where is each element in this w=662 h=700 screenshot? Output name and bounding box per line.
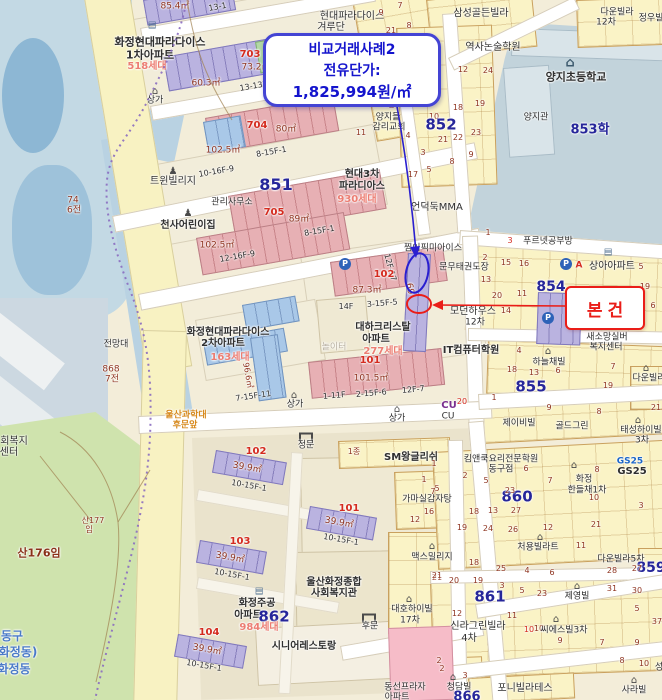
- map-label: 3: [499, 582, 504, 590]
- map-label: 11: [576, 542, 586, 550]
- map-label: CU: [441, 401, 456, 411]
- map-label: 13: [481, 276, 491, 284]
- map-label: 화정동: [0, 663, 31, 675]
- map-label: 전망대: [104, 341, 129, 350]
- map-label: 6: [549, 569, 554, 577]
- map-label: 6: [650, 302, 655, 310]
- map-label: 20: [457, 398, 467, 406]
- map-label: 21: [591, 521, 601, 529]
- map-label: 69: [403, 283, 414, 296]
- map-label: 천사어린이집: [160, 221, 215, 231]
- map-label: 2: [439, 665, 444, 673]
- map-label: 감리교회: [372, 124, 405, 133]
- map-label: 854: [536, 280, 565, 294]
- map-label: 6전: [67, 207, 81, 216]
- map-label: 12: [410, 516, 420, 524]
- map-label: 양지초등학교: [546, 72, 607, 83]
- map-label: 11: [507, 612, 517, 620]
- map-label: 가마실감자탕: [402, 496, 452, 505]
- map-label: 제영빌: [565, 593, 590, 602]
- school-icon: ⌂: [565, 57, 574, 70]
- map-label: 2: [462, 472, 467, 480]
- map-label: 화정: [576, 476, 593, 485]
- map-label: 대호하이빌: [391, 606, 432, 615]
- map-label: 85.4㎡: [160, 3, 189, 12]
- map-label: 101: [360, 356, 381, 366]
- house-icon: ⌂: [574, 582, 580, 592]
- map-label: 13: [529, 369, 539, 377]
- map-label: 74: [67, 197, 78, 206]
- map-label: 2차아파트: [201, 339, 245, 349]
- map-label: 화정동): [0, 646, 37, 658]
- map-label: 102.5㎡: [200, 242, 235, 251]
- map-label: 1-11F: [323, 391, 346, 401]
- house-icon: ⌂: [643, 364, 649, 374]
- map-label: 12차: [596, 19, 616, 28]
- map-label: 5: [638, 263, 643, 271]
- map-label: 화정현대파라다이스: [114, 37, 205, 48]
- map-label: 855: [515, 380, 546, 395]
- map-label: 26: [508, 526, 518, 534]
- map-label: 새소망실버: [586, 334, 627, 343]
- map-label: 5: [426, 166, 431, 174]
- map-label: 866: [453, 691, 480, 700]
- map-label: 1종: [348, 448, 360, 456]
- map-label: 모던하우스: [450, 307, 496, 317]
- map-label: 골드그린: [555, 423, 588, 432]
- map-label: 21: [432, 572, 442, 580]
- map-label: 처용빌라트: [517, 544, 558, 553]
- person-icon: ♟: [184, 209, 193, 219]
- map-label: 상가: [389, 415, 406, 424]
- map-label: 시니어레스토랑: [272, 642, 336, 652]
- map-label: 복지센터: [589, 344, 622, 353]
- house-icon: ⌂: [406, 595, 412, 605]
- map-label: 1: [431, 460, 436, 468]
- map-label: 10: [589, 494, 599, 502]
- map-label: 703: [240, 50, 261, 60]
- map-label: 20: [449, 577, 459, 585]
- map-label: 16: [424, 508, 434, 516]
- map-label: 후문: [362, 623, 379, 632]
- house-icon: ⌂: [450, 673, 456, 683]
- map-label: 13: [488, 507, 498, 515]
- park-icon: P: [560, 258, 572, 270]
- house-icon: ⌂: [429, 542, 435, 552]
- park-icon: P: [339, 258, 351, 270]
- map-label: CU: [442, 413, 455, 422]
- map-label: 20: [492, 292, 502, 300]
- map-label: 27: [511, 507, 521, 515]
- map-label: 7: [599, 639, 604, 647]
- map-label: 21: [438, 136, 448, 144]
- map-label: 하늘채빌: [532, 359, 565, 368]
- map-label: SM왕글리쉬: [384, 453, 438, 463]
- map-label: 성: [655, 664, 662, 673]
- map-label: 12: [543, 524, 553, 532]
- map-label: 984세대: [239, 623, 278, 633]
- map-label: 현대3차: [345, 170, 380, 180]
- map-label: 한들채1차: [568, 487, 607, 496]
- map-label: 사회복지관: [311, 589, 357, 599]
- map-label: 19: [473, 577, 483, 585]
- map-label: 28: [607, 567, 617, 575]
- map-label: 8: [619, 657, 624, 665]
- map-label: 17: [408, 171, 418, 179]
- map-label: A: [576, 262, 583, 271]
- map-label: 868: [102, 366, 119, 375]
- callout-case-title: 비교거래사례2: [308, 39, 395, 59]
- bldg-icon: ▤: [148, 22, 157, 31]
- map-label: IT컴퓨터학원: [443, 346, 500, 356]
- map-label: 울산과학대: [165, 412, 206, 421]
- map-label: 씨에스빌3차: [540, 627, 587, 636]
- map-label: 2: [436, 657, 441, 665]
- map-label: 회복지: [0, 437, 28, 447]
- map-label: 24: [483, 67, 493, 75]
- map-label: 5: [483, 477, 488, 485]
- map-label: 트윈빌리지: [150, 177, 196, 187]
- map-label: GS25: [617, 467, 646, 477]
- map-label: 4: [405, 132, 410, 140]
- map-label: 27: [632, 565, 642, 573]
- map-label: 9: [378, 9, 383, 17]
- house-icon: ⌂: [553, 615, 559, 625]
- house-icon: ⌂: [537, 533, 543, 543]
- map-label: 1: [491, 394, 496, 402]
- map-label: 19: [475, 100, 485, 108]
- house-icon: ⌂: [631, 676, 637, 686]
- map-label: 울산화정종합: [306, 578, 361, 588]
- map-label: 12: [458, 66, 468, 74]
- map-label: 12F-7: [402, 385, 425, 395]
- map-label: 60.3㎡: [191, 80, 220, 89]
- map-label: 포니빌라테스: [497, 684, 552, 694]
- map-label: 후문앞: [173, 422, 198, 431]
- map-label: 9: [557, 637, 562, 645]
- map-label: 1: [485, 229, 490, 237]
- map-label: 8: [596, 408, 601, 416]
- house-icon: ⌂: [571, 461, 577, 471]
- map-label: 23: [471, 129, 481, 137]
- map-label: 찜이픽미아이스: [404, 245, 462, 254]
- map-label: 3: [638, 502, 643, 510]
- map-label: 7: [397, 2, 402, 10]
- map-label: 동선프라자: [384, 684, 425, 693]
- map-label: 6: [555, 367, 560, 375]
- map-label: 104: [199, 628, 220, 638]
- map-label: 아파트: [385, 694, 410, 700]
- map-label: 930세대: [337, 195, 376, 205]
- map-label: 3: [507, 237, 512, 245]
- map-label: 제이비빌: [502, 420, 535, 429]
- bldg-icon: ▤: [255, 588, 264, 597]
- map-label: 87.3㎡: [352, 287, 381, 296]
- map-label: 704: [247, 121, 268, 131]
- park-icon: P: [542, 312, 554, 324]
- map-label: 11: [517, 290, 527, 298]
- map-label: 문무태권도장: [439, 264, 489, 273]
- map-label: 상아아파트: [589, 262, 635, 272]
- map-label: 역사논술학원: [465, 43, 520, 53]
- map-label: 언덕둑MMA: [411, 203, 463, 213]
- map-label: 163세대: [210, 353, 249, 363]
- map-label: 7: [610, 363, 615, 371]
- map-label: 4: [524, 567, 529, 575]
- map-label: 태성하이빌: [620, 427, 661, 436]
- map-label: 103: [230, 537, 251, 547]
- map-label: 80㎡: [276, 126, 296, 135]
- map-label: 18: [469, 508, 479, 516]
- map-label: 놀이터: [322, 344, 347, 353]
- map-label: 23: [537, 590, 547, 598]
- map-label: 30: [632, 587, 642, 595]
- map-label: 1차아파트: [126, 50, 174, 61]
- map-label: 다운빌라: [600, 9, 633, 18]
- map-canvas[interactable]: ▤⌂♟♟⌂⌂⌂⌂▤⌂⌂⌂⌂⌂⌂⌂⌂⌂⌂⌂⌂▤PPP85.4㎡13-1화정현대파라…: [0, 0, 662, 700]
- map-label: 3: [462, 672, 467, 680]
- map-label: 4: [516, 347, 521, 355]
- map-label: 상가: [287, 401, 304, 410]
- map-label: 18: [469, 559, 479, 567]
- map-label: 신라그린빌라: [450, 622, 505, 632]
- map-label: 8: [594, 466, 599, 474]
- map-label: 7-15F-11: [235, 390, 272, 403]
- house-icon: ⌂: [635, 416, 641, 426]
- map-label: 705: [264, 208, 285, 218]
- house-icon: ⌂: [545, 347, 551, 357]
- map-label: 18: [507, 366, 517, 374]
- map-label: 17차: [400, 617, 420, 626]
- map-label: 11: [356, 129, 366, 137]
- subject-property-badge: 본건: [565, 286, 645, 330]
- map-label: 삼성골든빌라: [453, 9, 508, 19]
- map-label: 8: [449, 158, 454, 166]
- map-label: 25: [496, 565, 506, 573]
- map-label: 임: [85, 526, 92, 534]
- map-label: 7: [547, 477, 552, 485]
- map-label: 14: [501, 307, 511, 315]
- map-label: 10: [639, 660, 649, 668]
- map-label: 19: [603, 382, 613, 390]
- map-label: 상가: [147, 97, 164, 106]
- map-label: 37: [652, 618, 662, 626]
- map-label: 푸르넷공부방: [523, 238, 573, 247]
- map-label: 518세대: [127, 62, 166, 72]
- map-label: 산177: [82, 517, 105, 525]
- map-label: 파라디아스: [339, 182, 385, 192]
- pond: [2, 38, 64, 153]
- map-label: 겨루단: [317, 23, 345, 33]
- map-label: 3: [420, 149, 425, 157]
- map-label: 9: [546, 404, 551, 412]
- map-label: 102.5㎡: [206, 147, 241, 156]
- map-label: 101: [339, 504, 360, 514]
- pond: [12, 165, 92, 295]
- map-label: 23: [505, 487, 515, 495]
- map-label: 센터: [0, 448, 18, 458]
- map-label: 89㎡: [289, 216, 309, 225]
- map-label: 대하크리스탈: [355, 323, 410, 333]
- map-label: 853학: [570, 124, 609, 137]
- map-label: 9: [468, 151, 473, 159]
- map-label: 양지들: [376, 114, 401, 123]
- map-label: 사라빌: [622, 687, 647, 696]
- map-label: 현대파라다이스: [320, 12, 384, 22]
- map-label: 5: [519, 587, 524, 595]
- map-label: 24: [483, 525, 493, 533]
- map-label: 8: [406, 22, 411, 30]
- map-label: 7: [430, 488, 435, 496]
- map-label: 동구점: [489, 466, 514, 475]
- map-label: 맥스밀리지: [411, 554, 452, 563]
- map-label: 4차: [461, 634, 477, 644]
- map-label: 2: [482, 254, 487, 262]
- callout-unit-price-value: 1,825,994원/㎡: [293, 81, 412, 102]
- map-label: 22: [453, 134, 463, 142]
- map-label: 산176임: [17, 548, 60, 559]
- map-label: 15: [501, 259, 511, 267]
- map-label: 9: [634, 639, 639, 647]
- map-label: 14F: [339, 303, 354, 311]
- map-label: 7전: [105, 376, 119, 385]
- map-label: 852: [425, 118, 456, 133]
- map-label: 6: [523, 465, 528, 473]
- map-label: 정문: [298, 442, 315, 451]
- map-label: 102: [374, 270, 395, 280]
- map-label: 18: [453, 104, 463, 112]
- map-label: 3차: [635, 437, 649, 446]
- map-label: 851: [259, 177, 292, 193]
- map-label: 정우빌: [639, 15, 662, 24]
- map-label: 12차: [465, 319, 485, 328]
- comparable-case-callout: 비교거래사례2 전유단가: 1,825,994원/㎡: [263, 33, 441, 107]
- bldg-icon: ▤: [604, 249, 613, 258]
- map-label: 19: [457, 524, 467, 532]
- map-label: 101.5㎡: [354, 375, 389, 384]
- map-label: 16: [519, 260, 529, 268]
- map-label: 861: [474, 590, 505, 605]
- map-label: 아파트: [362, 335, 390, 345]
- map-label: 21: [651, 404, 661, 412]
- map-label: 31: [607, 585, 617, 593]
- map-label: 102: [246, 447, 267, 457]
- map-label: 10: [524, 626, 534, 634]
- map-label: 2-15F-6: [356, 388, 387, 399]
- map-label: 5: [634, 605, 639, 613]
- map-label: 관리사무소: [211, 199, 252, 208]
- map-label: 1: [421, 476, 426, 484]
- map-label: 다운빌라: [632, 375, 662, 384]
- map-label: 12: [452, 610, 462, 618]
- map-label: 양지관: [524, 114, 549, 123]
- map-label: 동구: [1, 630, 23, 642]
- map-label: 화정현대파라다이스: [187, 328, 270, 338]
- callout-unit-price-label: 전유단가:: [323, 60, 380, 80]
